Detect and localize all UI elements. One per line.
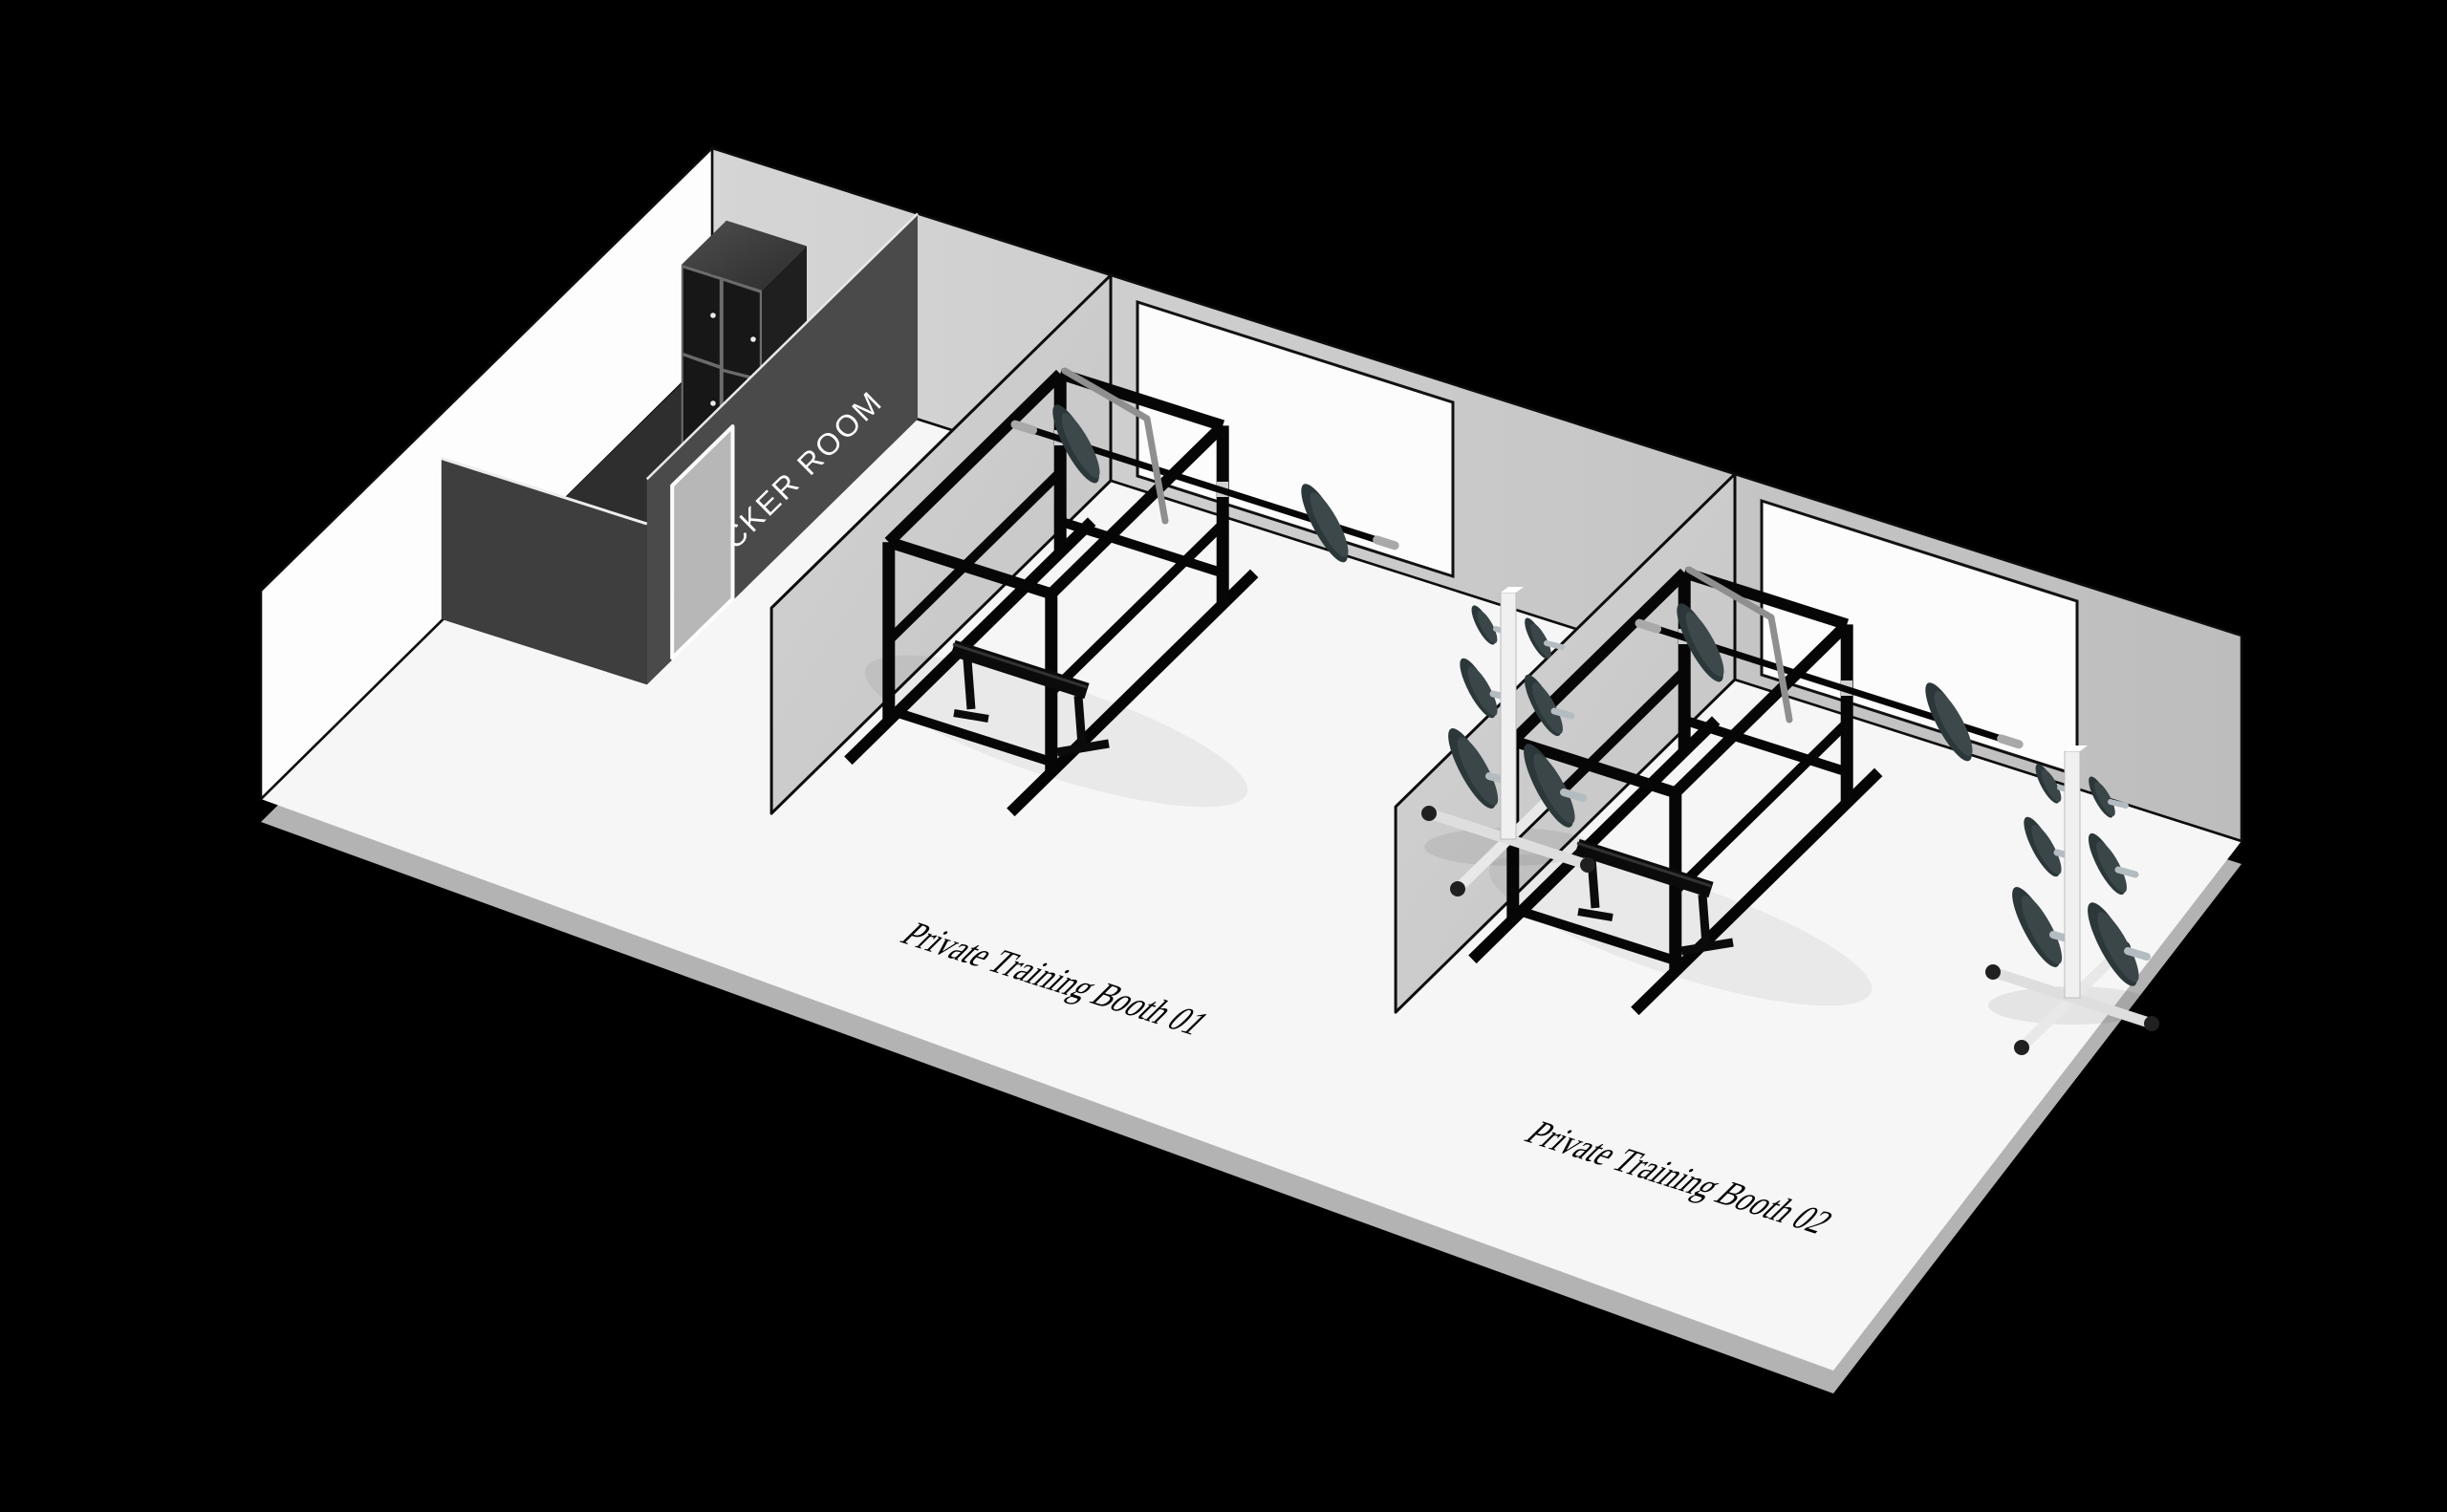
cabinet-handle [750, 336, 756, 342]
cabinet-handle [710, 313, 716, 318]
gym-floorplan-illustration: LOCKER ROOM Private Training Booth 01 Pr… [0, 0, 2447, 1512]
cabinet-door-top-right [724, 281, 760, 378]
scene-canvas: LOCKER ROOM Private Training Booth 01 Pr… [0, 0, 2447, 1512]
cabinet-handle [710, 400, 716, 406]
